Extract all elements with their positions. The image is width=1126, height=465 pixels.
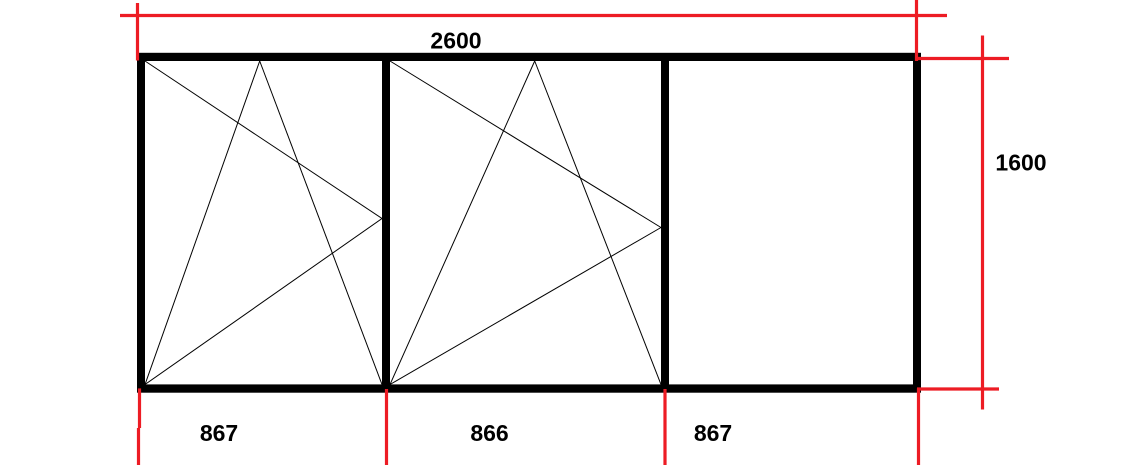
svg-text:1600: 1600: [995, 150, 1046, 176]
svg-text:2600: 2600: [430, 28, 481, 54]
svg-text:866: 866: [470, 420, 508, 446]
svg-text:867: 867: [200, 420, 238, 446]
svg-text:867: 867: [694, 420, 732, 446]
